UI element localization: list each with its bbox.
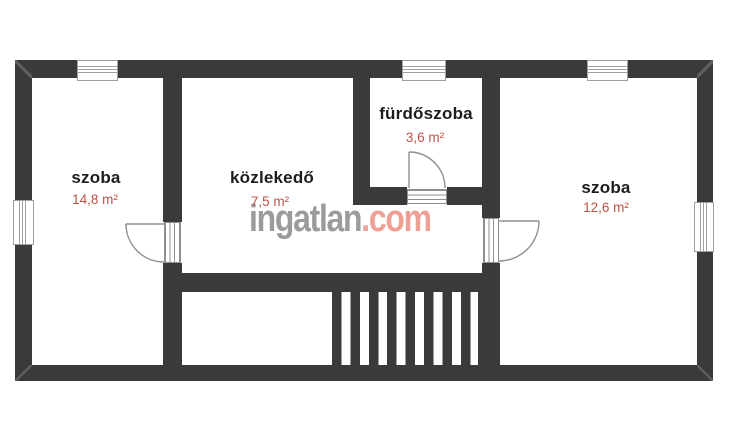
wall-bathroom-bottom-right bbox=[447, 187, 500, 205]
corner-miter-top-right bbox=[697, 60, 713, 78]
room-area-furdoszoba: 3,6 m² bbox=[406, 131, 444, 145]
window-top-bathroom bbox=[402, 60, 446, 81]
door-bathroom-arc bbox=[409, 152, 445, 188]
wall-bathroom-left bbox=[353, 78, 370, 187]
staircase bbox=[332, 292, 478, 365]
window-top-right-room bbox=[587, 60, 628, 81]
corner-miter-bottom-right bbox=[697, 365, 713, 381]
doorframe-bathroom bbox=[407, 189, 447, 204]
corner-miter-bottom-left bbox=[15, 365, 32, 381]
doorframe-right-room bbox=[483, 218, 499, 263]
wall-right-room-divider-lower bbox=[482, 263, 500, 365]
wall-bathroom-bottom-left bbox=[353, 187, 407, 205]
door-left-room-arc bbox=[126, 224, 164, 262]
window-top-left-room bbox=[77, 60, 118, 81]
doorframe-left-room bbox=[164, 222, 181, 263]
room-area-right-szoba: 12,6 m² bbox=[583, 201, 629, 215]
corner-miter-top-left bbox=[15, 60, 32, 78]
room-label-furdoszoba: fürdőszoba bbox=[379, 105, 473, 122]
wall-left-room-divider-lower bbox=[163, 263, 182, 365]
wall-hallway-bottom bbox=[182, 273, 482, 292]
room-area-kozlekedo: 7,5 m² bbox=[251, 195, 289, 209]
room-area-left-szoba: 14,8 m² bbox=[72, 193, 118, 207]
room-label-left-szoba: szoba bbox=[71, 169, 120, 186]
door-right-room-arc bbox=[499, 221, 539, 261]
room-label-right-szoba: szoba bbox=[581, 179, 630, 196]
window-right-wall bbox=[694, 202, 714, 252]
room-label-kozlekedo: közlekedő bbox=[230, 169, 314, 186]
floor-plan: ingatlan.com szoba 14,8 m² bbox=[0, 0, 730, 444]
wall-left-room-divider-upper bbox=[163, 78, 182, 222]
wall-bottom bbox=[15, 365, 713, 381]
window-left-wall bbox=[13, 200, 34, 245]
